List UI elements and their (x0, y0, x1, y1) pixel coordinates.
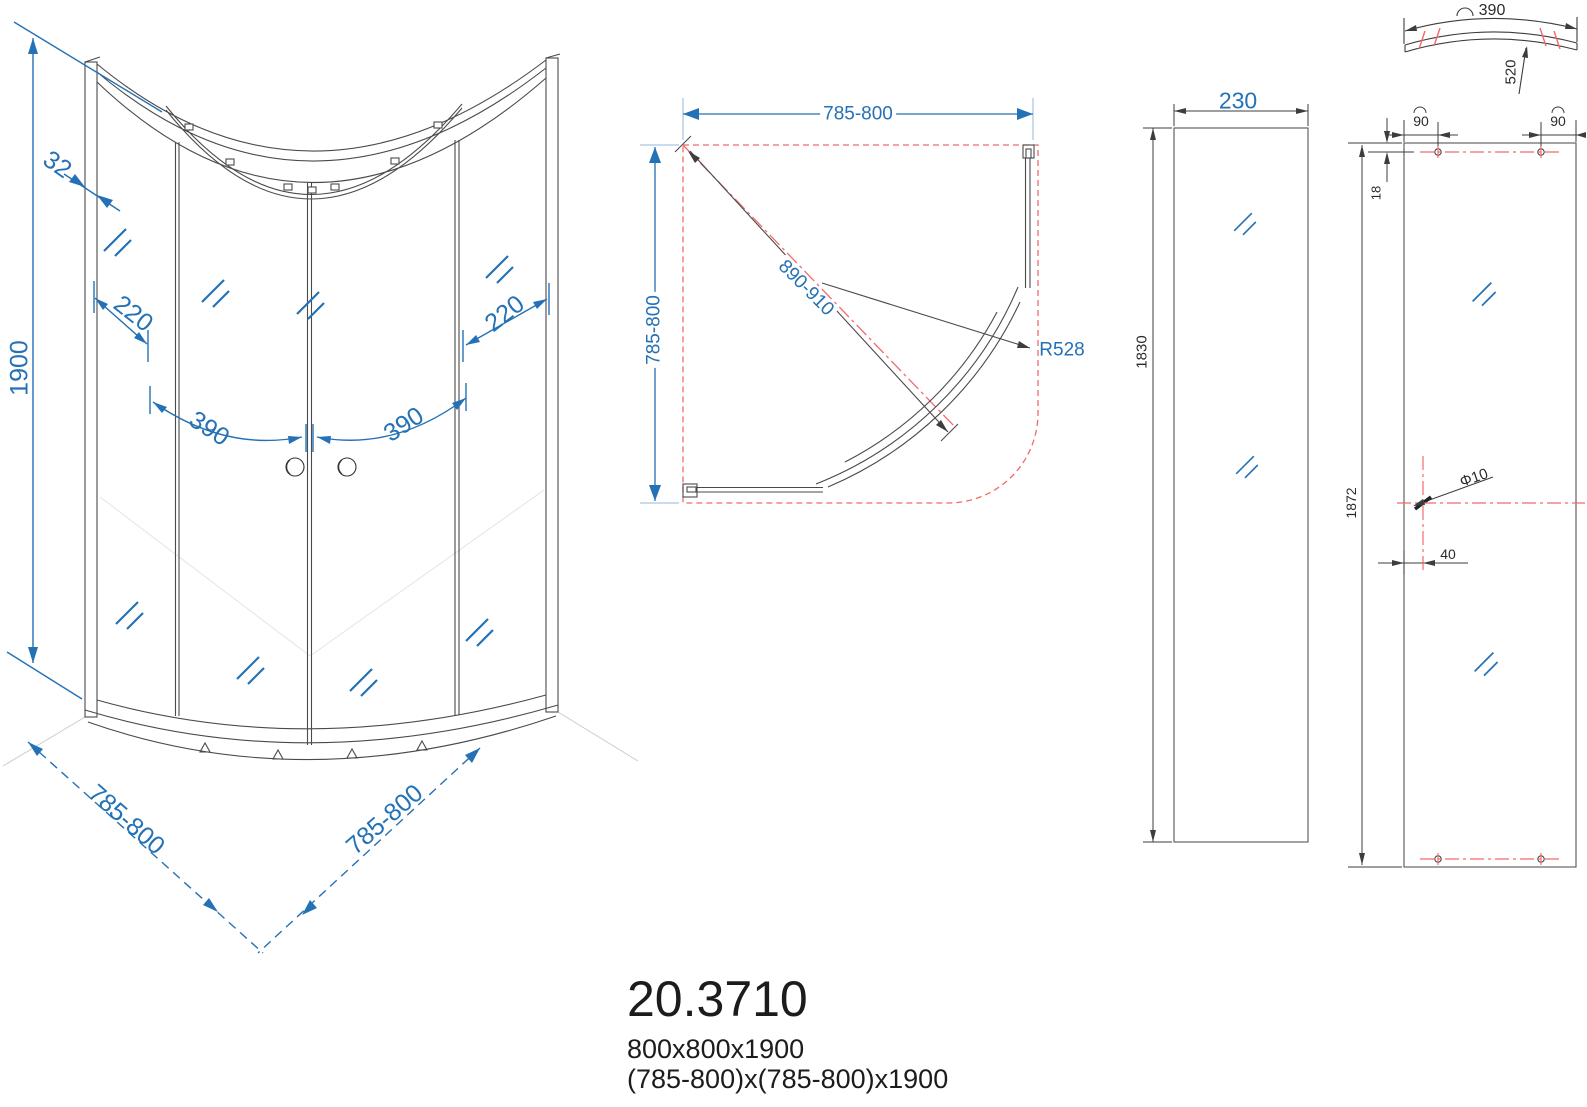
tray-outline-red (683, 145, 1038, 503)
dim-front-height: 1900 (8, 340, 33, 396)
dim-door-handle-offset: 40 (1440, 547, 1456, 561)
dim-side-panel-width: 230 (1219, 90, 1257, 113)
door-panel-arrows (1359, 23, 1586, 865)
product-code: 20.3710 (627, 970, 808, 1028)
plan-black-arrows (688, 151, 1030, 432)
front-dimension-lines (7, 22, 549, 953)
base-guide-details (200, 741, 427, 759)
dim-plan-radius: R528 (1039, 341, 1084, 360)
side-panel-outline (1174, 128, 1308, 842)
product-size-range: (785-800)x(785-800)x1900 (627, 1064, 948, 1095)
door-handles (286, 458, 356, 476)
dim-door-arc-length: 390 (1479, 3, 1506, 19)
door-arc-section (1404, 8, 1577, 94)
side-panel-glass-marks (1234, 213, 1258, 478)
dim-door-hole-left: 90 (1413, 114, 1429, 128)
dim-door-height: 1872 (1344, 487, 1358, 518)
plan-dimension-lines (655, 114, 1033, 501)
door-panel-red-centerlines (1397, 146, 1585, 865)
glass-marks (104, 229, 513, 696)
side-panel-dims (1143, 104, 1308, 842)
door-panel-drawing (1335, 0, 1587, 885)
front-elevation-drawing (0, 0, 660, 960)
dim-door-hole-top-offset: 18 (1370, 186, 1383, 200)
dim-side-panel-height: 1830 (1135, 335, 1150, 368)
dim-door-hole-right: 90 (1550, 114, 1566, 128)
spec-sheet-page: 1900 32 220 220 390 390 785-800 785-800 … (0, 0, 1587, 1107)
dim-plan-depth: 785-800 (645, 292, 664, 368)
plan-blue-arrows (649, 108, 1033, 501)
enclosure-frame (85, 54, 560, 760)
plan-view-drawing (620, 70, 1090, 530)
plan-glass-panels (675, 136, 1034, 497)
side-panel-drawing (1128, 85, 1318, 875)
product-size: 800x800x1900 (627, 1034, 804, 1065)
dim-plan-width: 785-800 (820, 105, 896, 124)
dim-door-arc-depth: 520 (1504, 59, 1519, 84)
door-panel-outline (1404, 143, 1576, 867)
